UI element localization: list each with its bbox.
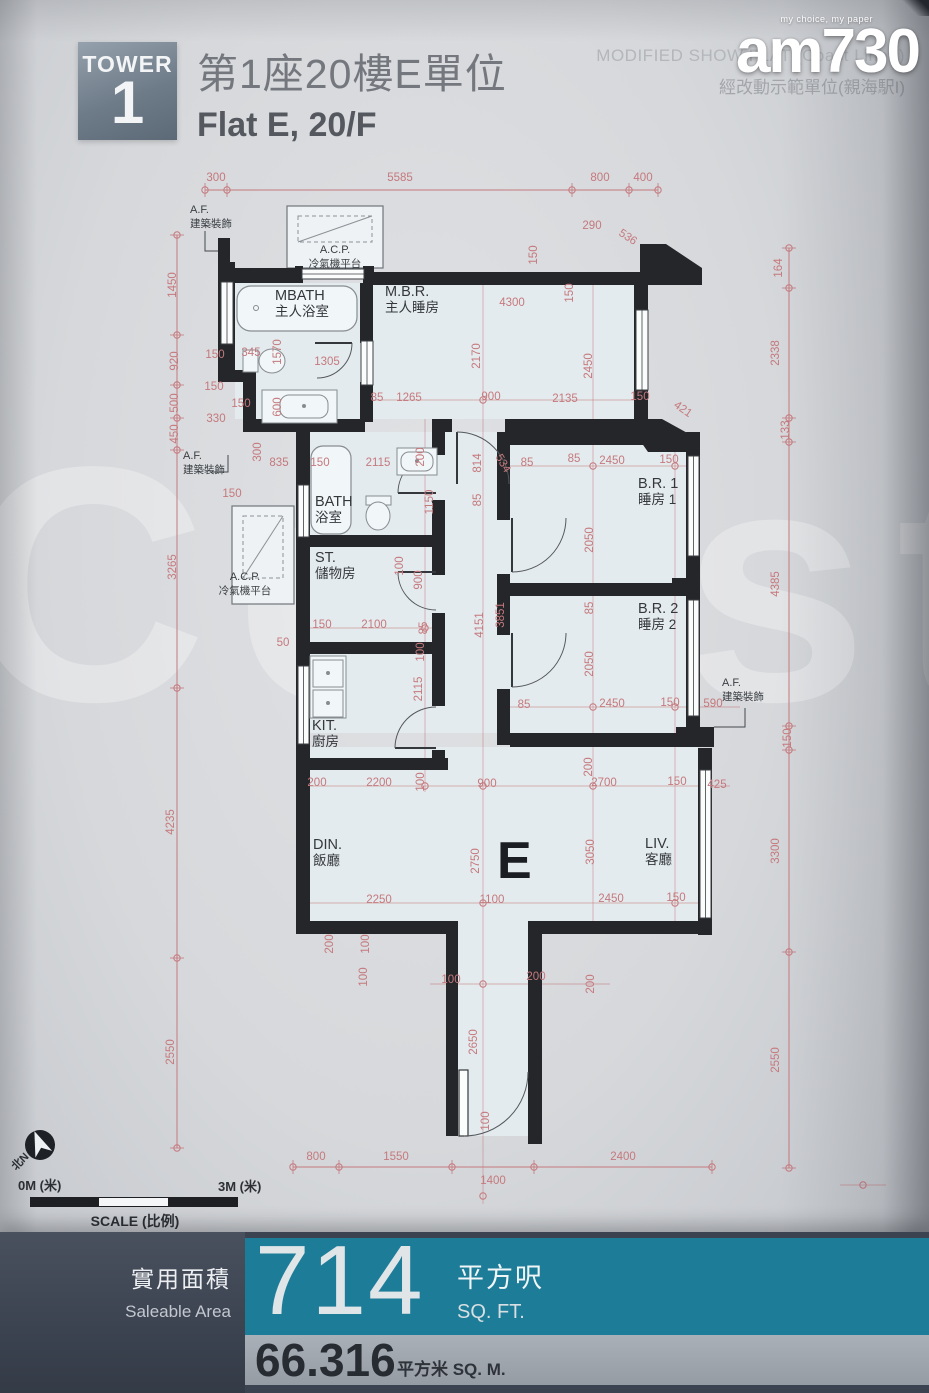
dimension-label: 1265	[396, 392, 422, 404]
dimension-label: 85	[584, 602, 596, 615]
dimension-label: 900	[481, 391, 500, 403]
tower-badge-number: 1	[78, 74, 177, 131]
dimension-label: 2650	[468, 1029, 480, 1055]
dimension-label: 85	[568, 453, 581, 465]
dimension-label: 50	[277, 637, 290, 649]
wall-angled	[640, 244, 702, 285]
dimension-label: 150	[528, 245, 540, 264]
dimension-label: 100	[480, 1111, 492, 1130]
dimension-label: 2750	[470, 848, 482, 874]
dimension-label: 2400	[610, 1151, 636, 1163]
dimension-label: 2170	[471, 343, 483, 369]
room-label-cn: 浴室	[315, 509, 342, 525]
sqm-unit: 平方米 SQ. M.	[397, 1355, 506, 1380]
dimension-label: 450	[169, 424, 181, 443]
scale-bar	[30, 1197, 238, 1207]
dimension-label: 590	[703, 698, 722, 710]
dimension-label: 300	[206, 172, 225, 184]
unit-title-english: Flat E, 20/F	[197, 106, 507, 145]
dimension-label: 2550	[165, 1039, 177, 1065]
af-label: A.F.	[183, 450, 202, 462]
room-label-cn: 睡房 2	[638, 617, 676, 632]
dimension-label: 150	[666, 892, 685, 904]
dimension-label: 4151	[474, 612, 486, 638]
dimension-label: 1400	[480, 1175, 506, 1187]
dimension-label: 85	[418, 622, 430, 635]
dimension-label: 536	[616, 227, 639, 248]
af-label-cn: 建築裝飾	[183, 463, 225, 476]
scale-caption: SCALE (比例)	[60, 1211, 210, 1231]
dimension-label: 3050	[585, 839, 597, 865]
dimension-label: 2115	[366, 457, 391, 469]
dimension-label: 2550	[770, 1047, 782, 1073]
dimension-label: 2338	[770, 340, 782, 366]
unit-title-chinese: 第1座20樓E單位	[197, 40, 507, 100]
sqft-value-box: 714 平方呎 SQ. FT.	[245, 1238, 929, 1335]
dimension-label: 2450	[599, 455, 625, 467]
dimension-label: 133	[780, 420, 792, 439]
acp-label: A.C.P.	[320, 244, 350, 256]
sink-drain	[326, 671, 330, 675]
af-label-cn: 建築裝飾	[722, 690, 764, 703]
wall	[360, 283, 373, 343]
wall	[446, 934, 458, 1136]
dimension-label: 100	[415, 772, 427, 791]
dimension-label: 200	[526, 971, 545, 983]
dimension-label: 4385	[770, 571, 782, 597]
room-label-en: ST.	[315, 550, 336, 566]
dimension-label: 150	[222, 488, 241, 500]
dimension-label: 150	[630, 391, 649, 403]
scale-bar-block: 北N 0M (米) 3M (米) SCALE (比例)	[0, 1115, 320, 1225]
sqft-unit-en: SQ. FT.	[457, 1301, 544, 1324]
dimension-label: 345	[241, 347, 260, 359]
basin-drain	[302, 404, 306, 408]
dimension-label: 500	[169, 393, 181, 412]
wall	[497, 689, 510, 745]
af-label: A.F.	[190, 204, 209, 216]
room-label-en: B.R. 2	[638, 601, 678, 617]
dimension-label: 150	[667, 776, 686, 788]
dimension-label: 150	[205, 349, 224, 361]
am730-wordmark: am730	[736, 24, 919, 80]
dimension-label: 100	[394, 556, 406, 575]
room-label-en: BATH	[315, 494, 353, 510]
wall	[296, 921, 458, 934]
room-label-cn: 主人睡房	[385, 300, 439, 315]
toilet-bowl	[366, 502, 390, 530]
wall	[218, 268, 302, 283]
dimension-label: 100	[441, 974, 460, 986]
dimension-label: 425	[707, 779, 726, 791]
acp-label-cn: 冷氣機平台	[219, 584, 272, 597]
sqm-value-box: 66.316 平方米 SQ. M.	[245, 1335, 929, 1385]
wall	[308, 758, 448, 770]
room-label-cn: 主人浴室	[275, 303, 329, 319]
room-label-en: MBATH	[275, 288, 325, 304]
dimension-label: 150	[659, 454, 678, 466]
saleable-area-label-box: 實用面積 Saleable Area	[0, 1232, 245, 1393]
room-label-cn: 客廳	[645, 851, 672, 867]
dimension-label: 100	[360, 934, 372, 953]
scale-zero-label: 0M (米)	[18, 1175, 61, 1194]
wall	[528, 921, 712, 934]
wall	[510, 583, 686, 596]
dimension-label: 2050	[584, 651, 596, 677]
dimension-label: 2115	[413, 677, 425, 702]
dimension-label: 3851	[495, 602, 507, 628]
af-label: A.F.	[722, 677, 741, 689]
dimension-label: 4300	[499, 297, 525, 309]
room-label-en: LIV.	[645, 836, 669, 852]
dimension-label: 2250	[366, 894, 392, 906]
dimension-label: 2135	[552, 393, 578, 405]
dimension-label: 85	[371, 392, 384, 404]
room-label-cn: 儲物房	[315, 566, 356, 581]
af-leader-line	[714, 708, 745, 727]
wall	[308, 535, 434, 547]
dimension-label: 400	[633, 172, 652, 184]
dimension-label: 150	[204, 381, 223, 393]
room-label-cn: 廚房	[312, 733, 339, 749]
dimension-label: 2450	[598, 893, 624, 905]
dimension-label: 150	[312, 619, 331, 631]
scale-3m-label: 3M (米)	[218, 1176, 261, 1195]
room-label-en: DIN.	[313, 837, 342, 853]
saleable-area-banner: 實用面積 Saleable Area 714 平方呎 SQ. FT. 66.31…	[0, 1232, 929, 1393]
dimension-label: 150	[660, 697, 679, 709]
dimension-label: 1570	[272, 339, 284, 365]
dimension-label: 1100	[480, 894, 505, 906]
room-label-cn: 飯廳	[313, 852, 340, 868]
hob-mark	[326, 701, 330, 705]
entrance-door-leaf	[459, 1070, 468, 1136]
room-label-en: KIT.	[312, 718, 337, 734]
wall	[528, 934, 542, 1144]
wall	[432, 658, 445, 706]
sqm-value: 66.316	[255, 1333, 396, 1387]
dimension-label: 1450	[167, 272, 179, 298]
dimension-label: 421	[671, 399, 694, 420]
dimension-label: 600	[272, 397, 284, 416]
dimension-label: 2200	[366, 777, 392, 789]
dimension-label: 1305	[314, 356, 340, 368]
room-label-cn: 睡房 1	[638, 492, 676, 507]
dimension-label: 5585	[387, 172, 413, 184]
sqft-unit-cn: 平方呎	[457, 1256, 544, 1295]
tower-badge: TOWER 1	[78, 42, 177, 140]
wall	[510, 733, 702, 747]
dimension-label: 2100	[361, 619, 387, 631]
dimension-label: 85	[518, 699, 531, 711]
dimension-label: 100	[415, 642, 427, 661]
acp-label-cn: 冷氣機平台	[309, 257, 362, 270]
dimension-label: 1150	[424, 490, 436, 515]
saleable-area-label-cn: 實用面積	[0, 1260, 231, 1294]
dimension-label: 150	[564, 283, 576, 302]
north-arrow-icon: 北N	[4, 1117, 74, 1177]
dimension-label: 330	[206, 413, 225, 425]
dimension-label: 150	[782, 728, 794, 747]
dimension-label: 150	[231, 398, 250, 410]
wall	[510, 432, 650, 445]
dimension-label: 3300	[770, 838, 782, 864]
dimension-label: 200	[324, 934, 336, 953]
dimension-label: 900	[413, 570, 425, 589]
dimension-label: 85	[472, 494, 484, 507]
room-label-en: B.R. 1	[638, 476, 678, 492]
dimension-label: 1550	[383, 1151, 409, 1163]
dimension-label: 85	[521, 457, 534, 469]
dimension-label: 100	[358, 967, 370, 986]
sqft-value: 714	[255, 1224, 425, 1337]
photo-of-floor-plan: Coast 3005585800400290536150164233813343…	[0, 0, 929, 1393]
saleable-area-label-en: Saleable Area	[0, 1302, 231, 1322]
dimension-label: 3265	[167, 554, 179, 580]
af-label-cn: 建築裝飾	[190, 217, 232, 230]
dimension-label: 814	[472, 453, 484, 473]
dimension-label: 164	[773, 258, 785, 278]
dimension-label: 900	[477, 778, 496, 790]
dimension-label: 2050	[584, 527, 596, 553]
room-label-en: M.B.R.	[385, 284, 429, 300]
dimension-label: 2450	[583, 353, 595, 379]
dimension-label: 4235	[165, 809, 177, 835]
acp-label: A.C.P.	[230, 571, 260, 583]
dimension-label: 200	[583, 757, 595, 776]
dimension-label: 200	[585, 974, 597, 993]
dimension-label: 200	[415, 447, 427, 466]
am730-watermark-logo: my choice, my paper am730	[736, 14, 919, 80]
dimension-label: 800	[590, 172, 609, 184]
dimension-label: 300	[252, 442, 264, 461]
wall	[505, 419, 648, 432]
dimension-label: 835	[269, 457, 288, 469]
dimension-label: 200	[307, 777, 326, 789]
dimension-label: 290	[582, 220, 601, 232]
dimension-label: 920	[169, 351, 181, 370]
af-leader-line	[205, 231, 218, 251]
dimension-label: 150	[310, 457, 329, 469]
dimension-label: 2700	[591, 777, 617, 789]
flat-letter: E	[497, 832, 532, 890]
dimension-label: 2450	[599, 698, 625, 710]
